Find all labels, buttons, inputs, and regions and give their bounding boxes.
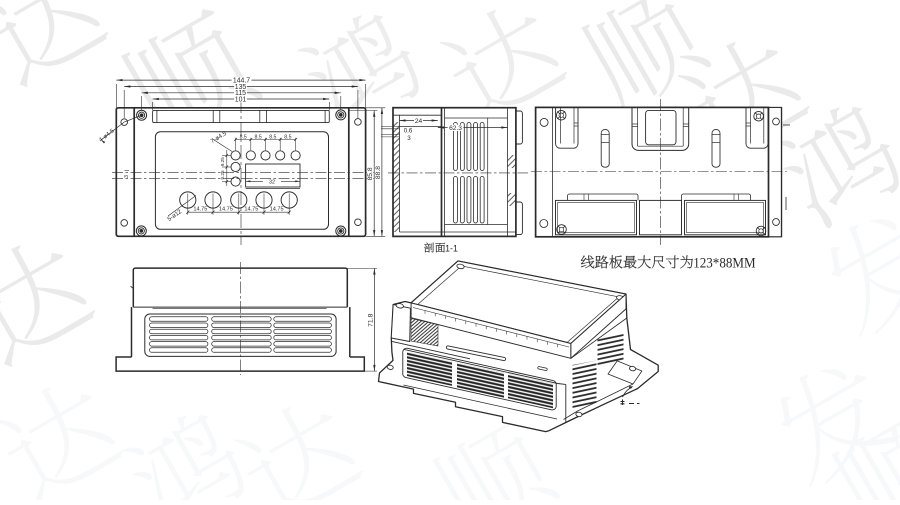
svg-text:3: 3 — [407, 135, 411, 142]
svg-text:71.8: 71.8 — [367, 313, 374, 326]
svg-text:8.5: 8.5 — [240, 134, 247, 140]
svg-text:14.75: 14.75 — [219, 207, 233, 213]
svg-text:24: 24 — [415, 118, 423, 125]
svg-text:14.75: 14.75 — [270, 207, 284, 213]
svg-text:8.5: 8.5 — [269, 134, 276, 140]
svg-text:88.8: 88.8 — [375, 166, 382, 179]
svg-text:1-1: 1-1 — [445, 243, 458, 253]
svg-text:3: 3 — [124, 175, 130, 178]
svg-text:14.75: 14.75 — [244, 207, 258, 213]
svg-text:0.6: 0.6 — [404, 128, 413, 135]
svg-text:101: 101 — [235, 96, 247, 103]
svg-text:14.75: 14.75 — [193, 207, 207, 213]
svg-text:8.5: 8.5 — [255, 134, 262, 140]
svg-text:9.25: 9.25 — [220, 157, 225, 167]
svg-text:85.8: 85.8 — [367, 167, 374, 180]
svg-text:62.3: 62.3 — [449, 125, 462, 132]
svg-text:123*88MM: 123*88MM — [693, 255, 756, 271]
svg-text:32: 32 — [269, 179, 275, 185]
svg-text:8.5: 8.5 — [284, 134, 291, 140]
svg-text:9.25: 9.25 — [220, 170, 225, 180]
